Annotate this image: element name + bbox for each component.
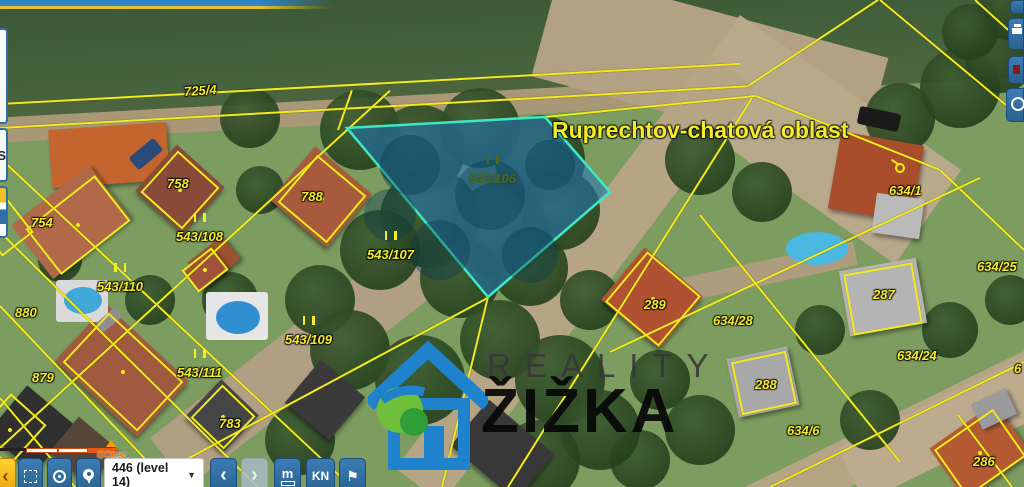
- tree: [985, 275, 1024, 325]
- print-icon-glyph: [1012, 28, 1022, 34]
- parcel-label: 287: [873, 287, 895, 302]
- chevron-down-icon: ▼: [187, 470, 196, 480]
- parcel-label: 634/25: [977, 259, 1017, 274]
- parcel-label: 286: [973, 454, 995, 469]
- parcel-label: 543/109: [285, 332, 332, 347]
- print-icon-top: [1014, 24, 1021, 27]
- parcel-label: 634/1: [889, 183, 922, 198]
- parcel-label: 788: [301, 189, 323, 204]
- watermark-zizka: ŽIŽKA: [481, 381, 679, 443]
- pin-button[interactable]: [76, 458, 101, 487]
- area-title: Ruprechtov-chatová oblast: [552, 117, 849, 144]
- parcel-label: 725/4: [184, 82, 218, 99]
- search-icon[interactable]: [1006, 88, 1024, 122]
- scalebar-marker: [106, 440, 116, 447]
- parcel-label: 754: [31, 215, 53, 230]
- landuse-marks-icon: [194, 349, 206, 358]
- kn-cadastre-button[interactable]: KN: [306, 458, 335, 487]
- crosshair-icon: [53, 470, 66, 483]
- tree: [732, 162, 792, 222]
- parcel-label: 288: [755, 377, 777, 392]
- measure-icon: m: [281, 467, 295, 486]
- collapse-toolbar-button[interactable]: ‹: [0, 458, 16, 487]
- parcel-label: 879: [32, 370, 54, 385]
- rect-select-button[interactable]: [18, 458, 43, 487]
- parcel-dot: [75, 222, 81, 228]
- landuse-marks-icon: [303, 316, 315, 325]
- pool: [216, 301, 260, 334]
- parcel-label: 543/110: [97, 279, 143, 294]
- right-button-partial-1[interactable]: [1010, 0, 1024, 14]
- parcel-label: 543/106: [469, 171, 516, 186]
- parcel-label: 543/111: [177, 365, 222, 380]
- parcel-label: 634/24: [897, 348, 937, 363]
- parcel-label: 758: [167, 176, 189, 191]
- parcel-label: 543/108: [176, 229, 223, 244]
- parcel-label: 634/28: [713, 313, 753, 328]
- left-panel-partial[interactable]: [0, 28, 8, 124]
- tree: [220, 88, 280, 148]
- well-symbol-icon: [895, 163, 905, 173]
- rect-select-icon: [24, 470, 37, 483]
- scalebar-segment: [58, 448, 88, 453]
- left-legend-partial[interactable]: [0, 186, 8, 238]
- parcel-label: 289: [644, 297, 666, 312]
- flag-icon: ⚑: [346, 468, 359, 485]
- location-pin-icon: [83, 469, 94, 484]
- parcel-dot: [120, 369, 126, 375]
- parcel-label: 543/107: [367, 247, 414, 262]
- tree: [795, 305, 845, 355]
- zoom-level-select[interactable]: 446 (level 14) ▼: [104, 458, 204, 487]
- parcel-label: 6: [1014, 361, 1021, 376]
- cadastral-line: [939, 169, 1024, 250]
- parcel-outline: [63, 312, 184, 431]
- flag-button[interactable]: ⚑: [339, 458, 366, 487]
- parcel-label: 634/6: [787, 423, 820, 438]
- scalebar-segment: [26, 448, 58, 453]
- landuse-marks-icon: [385, 231, 397, 240]
- print-icon[interactable]: [1008, 18, 1024, 50]
- parcel-dot: [202, 267, 208, 273]
- parcel-label: 880: [15, 305, 37, 320]
- scalebar-segment: [0, 448, 26, 451]
- parcel-dot: [7, 427, 13, 433]
- history-back-button[interactable]: ‹: [210, 458, 237, 487]
- landuse-marks-icon: [114, 263, 126, 272]
- pool: [786, 232, 848, 265]
- search-icon-glyph: [1011, 97, 1024, 111]
- realty-logo-house-icon: [368, 338, 488, 473]
- chevron-right-icon: ›: [251, 465, 258, 485]
- locate-button[interactable]: [47, 458, 72, 487]
- measure-button[interactable]: m: [274, 458, 301, 487]
- landuse-marks-icon: [194, 213, 206, 222]
- parcel-label: 783: [219, 416, 241, 431]
- history-forward-button[interactable]: ›: [241, 458, 268, 487]
- left-button-partial[interactable]: S: [0, 128, 8, 182]
- landuse-marks-icon: [487, 155, 499, 164]
- chevron-left-icon: ‹: [220, 465, 227, 485]
- zoom-level-value: 446 (level 14): [112, 461, 187, 487]
- layers-icon: [1013, 65, 1020, 74]
- right-button-partial-2[interactable]: [1008, 56, 1024, 84]
- top-panel-edge-accent: [0, 6, 332, 9]
- map-viewport[interactable]: 725/4758754788543/108543/110880543/10754…: [0, 0, 1024, 487]
